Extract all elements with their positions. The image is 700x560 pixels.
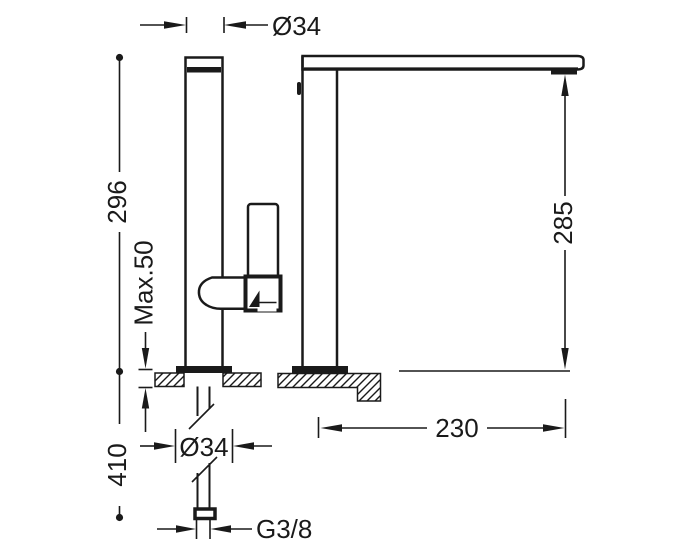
arrowhead — [142, 388, 149, 409]
handle-base-notch — [258, 303, 277, 312]
deck-section-front-right — [223, 373, 261, 387]
dim-label-max-thickness: Max.50 — [129, 240, 159, 325]
thread-connector — [195, 509, 215, 519]
column-joint-mark — [297, 82, 301, 95]
dim-label-top-diameter: Ø34 — [272, 11, 321, 41]
dim-top-diameter: Ø34 — [140, 11, 321, 41]
arrowhead — [211, 525, 232, 532]
arrowhead — [164, 21, 186, 29]
front-body-column — [186, 58, 223, 368]
aerator-outlet — [551, 70, 577, 75]
dim-outlet-height: 285 — [399, 75, 578, 372]
break-mark-upper — [189, 404, 214, 429]
arrowhead — [561, 75, 568, 97]
dim-base-diameter: Ø34 — [140, 429, 272, 463]
dimension-annotations: Ø34 296 410 Max.50 — [102, 11, 578, 544]
dim-label-under-deck-length: 410 — [102, 443, 132, 486]
arrowhead — [321, 424, 343, 431]
handle-lever — [248, 204, 278, 278]
dim-label-supply-thread: G3/8 — [256, 514, 312, 544]
arrowhead — [224, 21, 246, 29]
side-base-flange — [292, 366, 348, 373]
dim-label-base-diameter: Ø34 — [179, 432, 228, 462]
side-view — [278, 56, 584, 401]
arrowhead — [233, 442, 254, 449]
front-top-cap-band — [187, 67, 221, 73]
dim-max-deck-thickness: Max.50 — [129, 240, 159, 432]
dim-supply-thread: G3/8 — [157, 514, 312, 544]
arrowhead — [561, 348, 568, 370]
arrowhead — [142, 348, 149, 369]
front-base-flange — [176, 366, 232, 373]
dim-left-vertical-chain: 296 410 — [102, 54, 132, 521]
arrowhead — [543, 424, 565, 431]
dim-label-height-above-deck: 296 — [102, 180, 132, 223]
faucet-dimension-drawing: Ø34 296 410 Max.50 — [0, 0, 700, 560]
dim-label-spout-reach: 230 — [435, 413, 478, 443]
deck-section-front-left — [155, 373, 184, 387]
deck-section-side — [278, 374, 381, 402]
handle-cartridge-housing — [199, 278, 245, 309]
dim-label-outlet-height: 285 — [548, 201, 578, 244]
technical-drawing-canvas: Ø34 296 410 Max.50 — [0, 0, 700, 560]
arrowhead — [154, 442, 175, 449]
arrowhead — [176, 525, 196, 532]
dim-spout-reach: 230 — [319, 399, 566, 443]
